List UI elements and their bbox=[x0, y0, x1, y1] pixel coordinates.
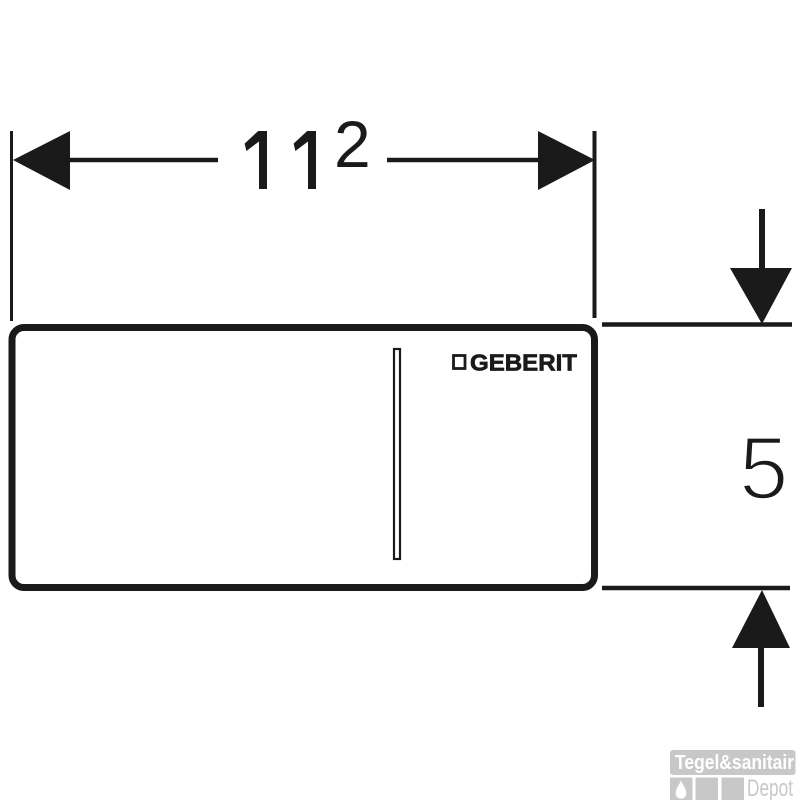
svg-text:5: 5 bbox=[739, 418, 789, 518]
svg-text:GEBERIT: GEBERIT bbox=[470, 350, 577, 376]
svg-text:Tegel&sanitair: Tegel&sanitair bbox=[675, 752, 794, 774]
svg-text:Depot: Depot bbox=[747, 775, 793, 800]
svg-text:2: 2 bbox=[334, 107, 371, 181]
